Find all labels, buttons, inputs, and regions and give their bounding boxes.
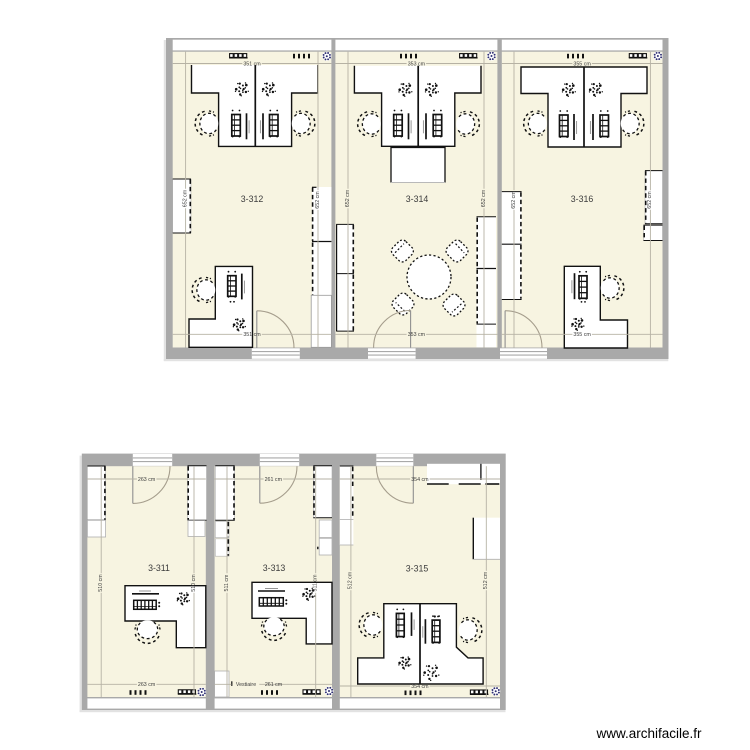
svg-text:3-311: 3-311 [148, 563, 170, 573]
svg-text:511 cm: 511 cm [224, 574, 230, 592]
svg-text:652 cm: 652 cm [345, 189, 351, 207]
svg-text:351 cm: 351 cm [243, 332, 261, 338]
svg-text:510 cm: 510 cm [191, 574, 197, 592]
svg-text:www.archifacile.fr: www.archifacile.fr [595, 726, 702, 741]
svg-text:351 cm: 351 cm [243, 61, 261, 67]
svg-text:512 cm: 512 cm [348, 571, 354, 589]
svg-text:3-312: 3-312 [241, 194, 264, 204]
svg-text:3-315: 3-315 [406, 564, 429, 574]
svg-text:652 cm: 652 cm [315, 191, 321, 209]
svg-text:355 cm: 355 cm [573, 61, 591, 67]
svg-text:263 cm: 263 cm [138, 682, 156, 688]
svg-text:355 cm: 355 cm [573, 332, 591, 338]
svg-text:353 cm: 353 cm [408, 61, 426, 67]
svg-text:353 cm: 353 cm [408, 332, 426, 338]
svg-text:511 cm: 511 cm [313, 574, 319, 592]
svg-text:652 cm: 652 cm [481, 189, 487, 207]
svg-text:510 cm: 510 cm [98, 574, 104, 592]
svg-text:354 cm: 354 cm [411, 684, 429, 690]
svg-text:652 cm: 652 cm [511, 191, 517, 209]
svg-text:Vestiaire: Vestiaire [236, 682, 256, 688]
svg-text:3-316: 3-316 [571, 194, 594, 204]
svg-text:3-313: 3-313 [263, 563, 286, 573]
svg-text:512 cm: 512 cm [483, 571, 489, 589]
svg-text:652 cm: 652 cm [182, 189, 188, 207]
svg-text:261 cm: 261 cm [265, 477, 283, 483]
svg-text:263 cm: 263 cm [138, 477, 156, 483]
svg-text:3-314: 3-314 [406, 194, 429, 204]
svg-text:261 cm: 261 cm [265, 682, 283, 688]
svg-text:354 cm: 354 cm [411, 477, 429, 483]
svg-text:652 cm: 652 cm [647, 191, 653, 209]
